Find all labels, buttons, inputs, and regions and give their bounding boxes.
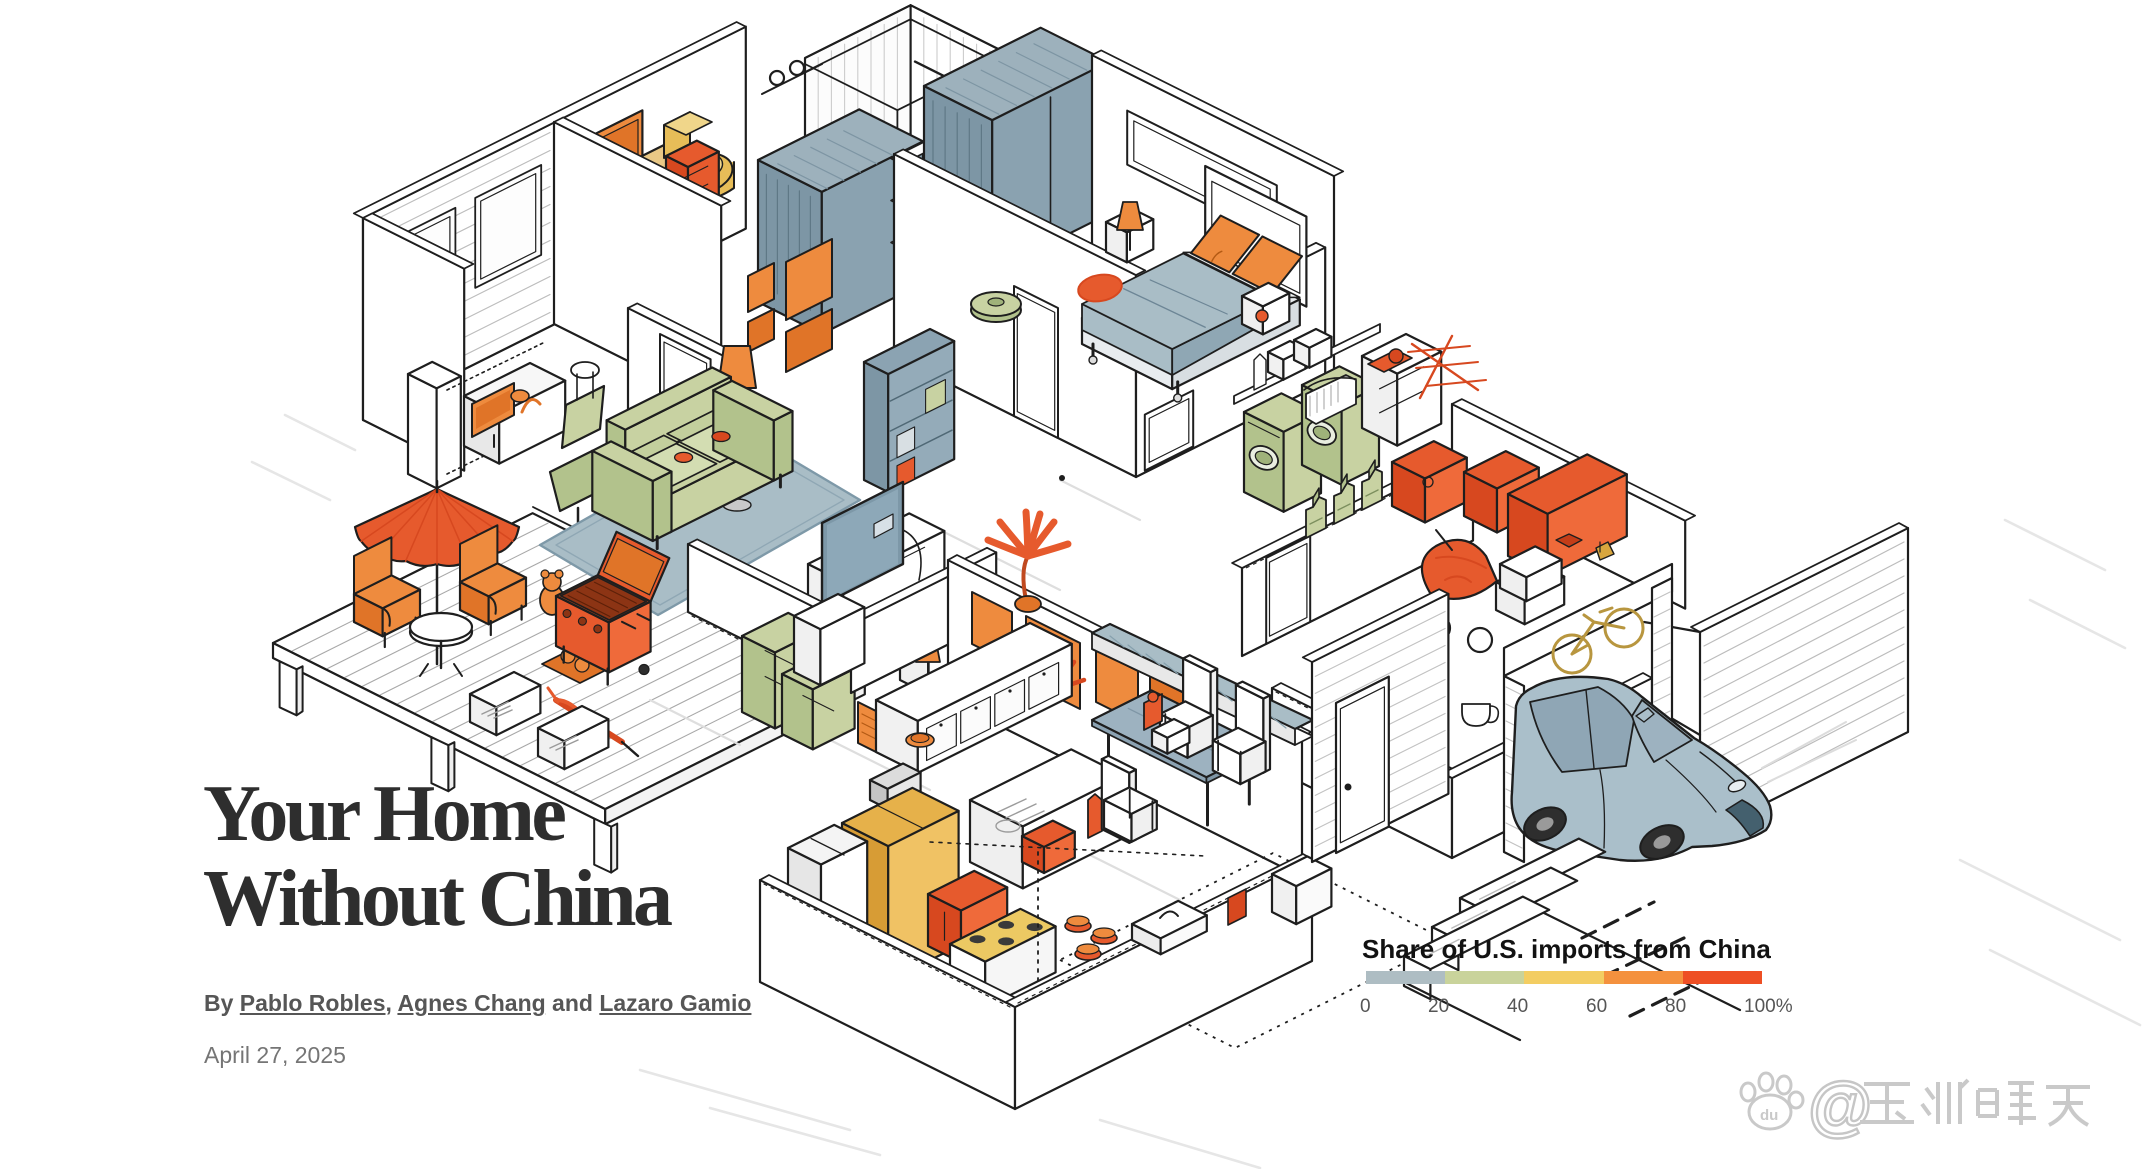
svg-text:du: du: [1760, 1107, 1778, 1124]
svg-text:@: @: [1808, 1068, 1872, 1142]
